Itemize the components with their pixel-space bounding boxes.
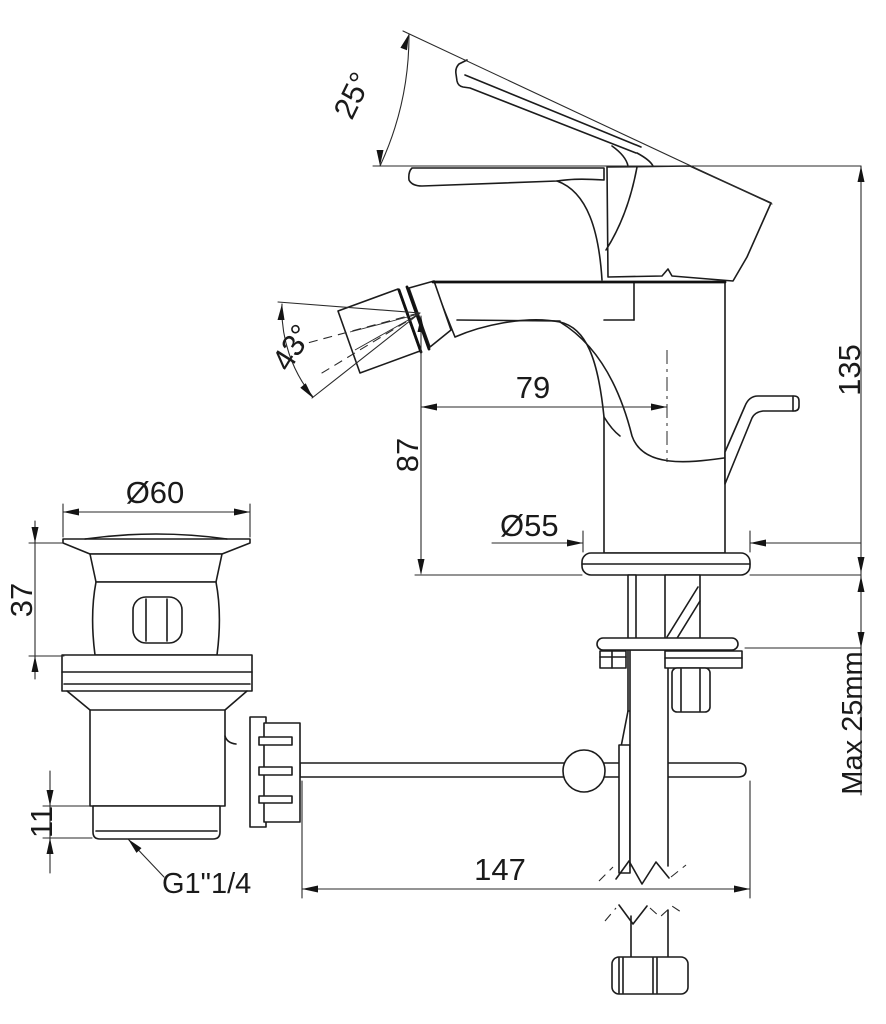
supply-shank (630, 650, 668, 866)
label-waste-height: 37 (4, 583, 39, 617)
label-handle-angle: 25° (327, 67, 379, 124)
label-total-height: 135 (832, 344, 867, 396)
label-thread-height: 11 (24, 806, 59, 838)
waste-plug-flange (63, 534, 250, 554)
supply-nut-fragment (605, 905, 688, 994)
label-spout-height: 87 (390, 438, 425, 472)
waste-lower-body (67, 691, 247, 806)
label-deck-thickness: Max 25mm (837, 651, 869, 794)
popup-knob (725, 396, 799, 484)
shank-flange (665, 651, 742, 668)
technical-drawing-page: 25° 43° 79 87 135 Max 25mm Ø55 Ø60 37 11… (0, 0, 886, 1024)
bidet-mixer-drawing: 25° 43° 79 87 135 Max 25mm Ø55 Ø60 37 11… (0, 0, 886, 1024)
horseshoe-washer (597, 638, 738, 650)
faucet-body (433, 282, 725, 553)
popup-waste-group (62, 534, 300, 839)
handle-raised-outline (456, 60, 653, 166)
label-base-diameter: Ø55 (500, 508, 559, 543)
label-spray-angle: 43° (265, 318, 320, 376)
handle-lever (409, 168, 604, 186)
waste-lower-flange (62, 655, 252, 691)
horizontal-lift-rod (300, 763, 746, 777)
label-rod-length: 147 (474, 852, 526, 887)
overflow-slot (133, 597, 182, 643)
aerator (338, 281, 451, 373)
label-spout-reach: 79 (516, 370, 550, 405)
left-locknut (600, 651, 626, 668)
label-waste-diameter: Ø60 (126, 475, 185, 510)
mounting-hardware-group (300, 575, 746, 994)
waste-thread (93, 806, 220, 839)
popup-rod-lower (619, 745, 630, 873)
waste-neck (90, 554, 222, 582)
base-flange (582, 553, 750, 575)
rod-coupling-nut (250, 717, 300, 827)
neck-curve (557, 181, 602, 280)
rod-ball-joint (563, 750, 605, 792)
label-thread-size: G1"1/4 (162, 868, 251, 900)
handle-body (607, 166, 771, 281)
mounting-hex-nut (672, 668, 710, 712)
